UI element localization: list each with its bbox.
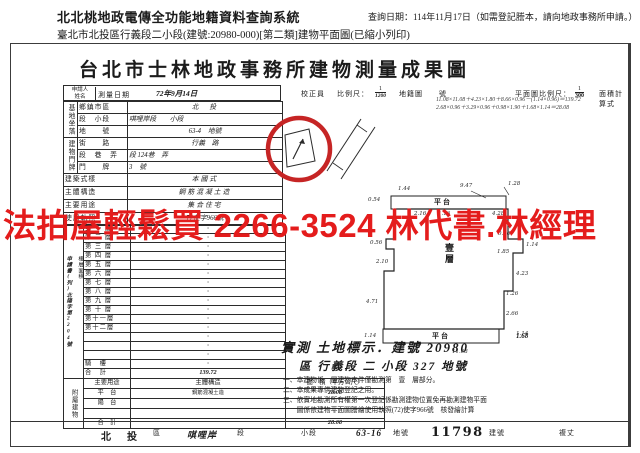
dimension-label: 4.23 [516, 271, 528, 277]
attached-use [84, 409, 131, 419]
area-formula-line1: 11.08×11.08＋4.23×1.80＋8.66×0.96－(1.14×0.… [436, 96, 631, 104]
building-label: 建號 [489, 428, 505, 438]
floor-area: · [131, 333, 286, 342]
row-label: 建築式樣 [64, 174, 128, 187]
dimension-label: 1.26 [506, 291, 518, 297]
row-label: 街 路 [78, 138, 128, 150]
attached-structure: 鋼筋混凝土造 [131, 389, 286, 399]
applicant-name-label: 申請人 姓名 [65, 87, 96, 101]
section-label: 段 [237, 428, 245, 438]
red-circle-annotation [268, 118, 330, 180]
remeasure-label: 複丈 [559, 428, 575, 438]
scale-denominator: 1200 [375, 92, 386, 99]
attached-structure-header: 主體構造 [131, 379, 286, 389]
subsection-label: 小段 [301, 428, 317, 438]
floor-total: 139.72 [131, 369, 286, 379]
parcel-label: 地號 [393, 428, 409, 438]
scale-label: 比例尺： [337, 89, 369, 99]
row-label: 主體構造 [64, 187, 128, 200]
road-tick [357, 125, 367, 132]
floor-area: · [131, 315, 286, 324]
row-label: 門 牌 [78, 162, 128, 174]
floor-area: · [131, 351, 286, 360]
floor-label [84, 333, 131, 342]
attached-structure [131, 399, 286, 409]
door-group-label: 建物門牌 [64, 138, 78, 174]
floor-label: 第 五 層 [84, 261, 131, 270]
parcel-outline [285, 129, 315, 167]
application-no: 申請書(列)北陽字第2204號 [65, 256, 70, 347]
floor-area: · [131, 342, 286, 351]
survey-date-value: 72年9月14日 [156, 88, 197, 99]
floor-label: 第 九 層 [84, 297, 131, 306]
floor-row: 第十二層· [64, 324, 385, 333]
system-title: 北北桃地政電傳全功能地籍資料查詢系統 [57, 7, 300, 26]
dimension-label: 1.28 [508, 181, 520, 187]
floor-label: 第十一層 [84, 315, 131, 324]
floor-label: 第 六 層 [84, 270, 131, 279]
floor-area: · [131, 270, 286, 279]
floor-area: · [131, 360, 286, 369]
floor-area: · [131, 306, 286, 315]
floors-group-label: 樓層面積 [77, 256, 82, 347]
site-group-label: 基地坐落 [64, 102, 78, 138]
floor-area: · [131, 279, 286, 288]
row-label: 地 號 [78, 126, 128, 138]
district-value: 北 投 [101, 428, 140, 443]
floor-row: 第 四 層· [64, 252, 385, 261]
section-value: 唭哩岸 [187, 428, 217, 441]
land-registry-query-screen: 北北桃地政電傳全功能地籍資料查詢系統 查詢日期：114年11月17日（如需登記謄… [0, 0, 640, 453]
road-edge-line [327, 119, 361, 171]
attached-use: 平 台 [84, 389, 131, 399]
floor-label: 第 十 層 [84, 306, 131, 315]
floor-row: 第十一層· [64, 315, 385, 324]
attached-use: 陽 台 [84, 399, 131, 409]
parcel-annotation: 區 行義段 二 小段 327 地號 [299, 358, 468, 374]
scale-numerator: 1 [379, 86, 382, 92]
dimension-label: 1.44 [398, 186, 410, 192]
floor-area: · [131, 297, 286, 306]
floor-label: 騎 樓 [84, 360, 131, 369]
floor-row: 第 六 層· [64, 270, 385, 279]
floor-row: 第 五 層· [64, 261, 385, 270]
cadastral-map-label: 地籍圖 [399, 89, 423, 99]
floor-label [84, 342, 131, 351]
attached-structure [131, 409, 286, 419]
scale-fraction: 1 1200 [375, 86, 386, 99]
dimension-leader [471, 191, 486, 198]
floor-area: · [131, 288, 286, 297]
district-label: 區 [153, 428, 161, 438]
floor-row: 第 九 層· [64, 297, 385, 306]
floor-label: 第 四 層 [84, 252, 131, 261]
floor-area: · [131, 252, 286, 261]
notes-block: 一、本建物係 層建物本件僅勘測第 壹 層部分。 二、本成果專供建物登記之用。 三… [283, 376, 623, 416]
building-number: 11798 [431, 425, 484, 440]
query-date: 查詢日期：114年11月17日（如需登記謄本，請向地政事務所申請。） [368, 10, 637, 23]
dimension-label: 4.71 [366, 299, 378, 305]
road-tick [333, 163, 343, 170]
floor-area: · [131, 261, 286, 270]
dimension-label: 2.10 [376, 259, 388, 265]
floor-row: 第 十 層· [64, 306, 385, 315]
floor-row: 第 八 層· [64, 288, 385, 297]
attached-use-header: 主要用途 [84, 379, 131, 389]
floor-row: 第 七 層· [64, 279, 385, 288]
floor-area: · [131, 324, 286, 333]
floor-label [84, 351, 131, 360]
note-line: 二、本成果專供建物登記之用。 [283, 386, 623, 396]
dimension-label: 1.85 [497, 249, 509, 255]
parcel-number: 63-16 [356, 428, 382, 438]
dimension-label: 9.47 [460, 183, 472, 189]
area-formula-line2: 2.68×0.96＋3.29×0.96＋0.98×1.90＋1.68×1.14＝… [436, 104, 631, 112]
floor-label: 第 七 層 [84, 279, 131, 288]
road-edge-line [341, 127, 375, 179]
name-label: 姓名 [65, 94, 95, 101]
red-watermark-text: 法拍屋輕鬆買 2266-3524 林代書.林經理 [3, 199, 596, 247]
row-label: 段 巷 弄 [78, 150, 128, 162]
row-label: 鄉鎮市區 [78, 102, 128, 114]
floor-label: 第十二層 [84, 324, 131, 333]
dimension-label: 2.66 [506, 311, 518, 317]
survey-annotation-sup: 1.68 [516, 332, 528, 340]
survey-date-label: 測量日期 [98, 90, 130, 100]
survey-annotation: 實測 土地標示．建號 20980 [281, 337, 469, 356]
document-title: 台北市士林地政事務所建物測量成果圖 [79, 55, 470, 82]
floors-group-cell: 申請書(列)北陽字第2204號 樓層面積 [64, 225, 84, 379]
floor-label: 第 八 層 [84, 288, 131, 297]
checker-label: 校正員 [301, 89, 325, 99]
area-formula-lines: 11.08×11.08＋4.23×1.80＋8.66×0.96－(1.14×0.… [436, 96, 631, 112]
bottom-band: 北 投 區 唭哩岸 段 小段 63-16 地號 11798 建號 複丈 [11, 421, 628, 447]
document-subtitle: 臺北市北投區行義段二小段(建號:20980-000)[第二類]建物平面圖(已縮小… [57, 27, 410, 42]
note-line: 三、依實地勘測所有權第一次登記係勘測建物位置免再勘測建物平面 [283, 396, 623, 406]
plan-scale-numerator: 1 [578, 86, 581, 92]
note-line: 一、本建物係 層建物本件僅勘測第 壹 層部分。 [283, 376, 623, 386]
dimension-leader [504, 187, 509, 195]
row-label: 段 小段 [78, 114, 128, 126]
note-line: 圖係依建物平面圖謄繪使用執照(72)使字966號 核發繪計算 [283, 406, 623, 416]
floor-label: 合 計 [84, 369, 131, 379]
